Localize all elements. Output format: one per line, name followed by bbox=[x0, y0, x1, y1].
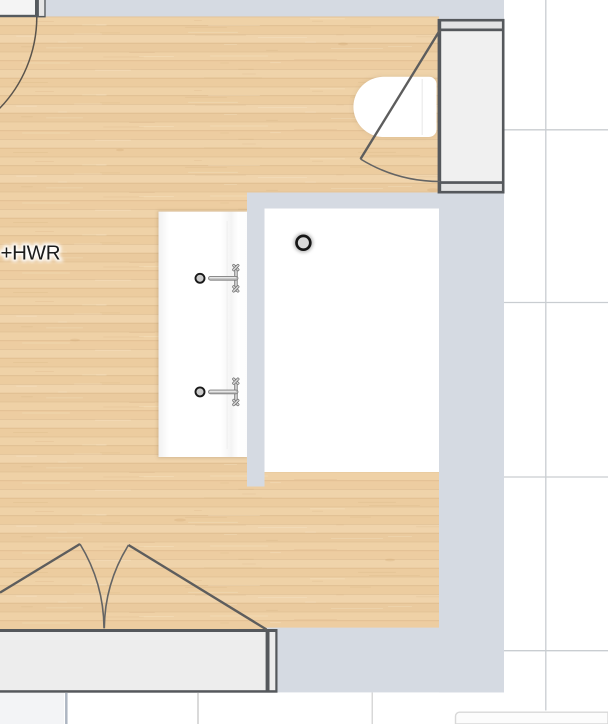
svg-text:+HWR: +HWR bbox=[1, 242, 61, 265]
